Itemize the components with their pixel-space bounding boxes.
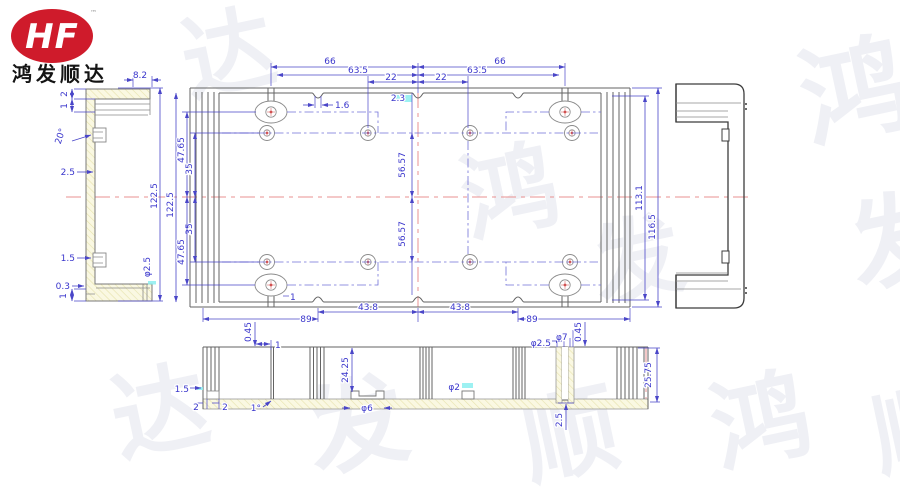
dim-47-65-bottom: 47.65: [177, 239, 187, 265]
phi2-boss: [462, 391, 474, 399]
highlight-mark: [148, 281, 156, 285]
channel-profile: [676, 84, 744, 308]
dim-66-right: 66: [494, 57, 506, 67]
dim-1: 1: [60, 103, 70, 109]
center-dimensions: 56.57 56.57: [398, 93, 412, 295]
dim-8-2: 8.2: [133, 71, 147, 81]
right-side-view: [676, 84, 747, 308]
watermark-char: 鸿: [451, 128, 568, 258]
watermark-char: 鸿: [789, 21, 900, 166]
dim-2-3: 2.3: [391, 94, 405, 104]
dim-20deg: 20°: [54, 127, 68, 145]
dim-122-5-a: 122.5: [150, 183, 160, 209]
dim-43-8-right: 43.8: [450, 303, 470, 313]
dim-1-6: 1.6: [335, 101, 350, 111]
dim-0-45-left: 0.45: [244, 322, 254, 342]
highlight-mark: [197, 387, 203, 390]
boss-wall-left: [556, 347, 562, 403]
dim-113-1: 113.1: [635, 185, 645, 211]
dim-25-75: 25.75: [644, 362, 654, 388]
dim-slot-1: 1: [290, 293, 296, 303]
watermark-char: 鸿: [701, 357, 821, 489]
company-name: 鸿发顺达: [12, 62, 108, 86]
clip-feature-top: [722, 129, 729, 141]
dim-2-a: 2: [193, 403, 199, 413]
watermark-char: 顺: [863, 370, 900, 491]
divider-wall: [271, 347, 274, 399]
cad-drawing-page: 达 鸿 鸿 发 发 达 发 顺 鸿 顺 HF ™ 鸿发顺达 8.2: [0, 0, 900, 500]
left-side-view-dimensions: 8.2 2 1 20° 2.5 1.5 0.3 1 φ2.5: [54, 71, 161, 301]
clip-feature-bottom: [722, 251, 729, 263]
wall-group-2: [420, 347, 432, 399]
dim-63-5-left: 63.5: [348, 66, 368, 76]
dim-56-57-top: 56.57: [398, 152, 408, 178]
dim-1-deg: 1°: [251, 404, 261, 414]
dim-122-5-b: 122.5: [166, 192, 176, 218]
dim-1-5-end: 1.5: [175, 385, 189, 395]
company-logo: HF ™ 鸿发顺达: [11, 9, 108, 86]
dim-116-5: 116.5: [648, 214, 658, 240]
boss-bore: [562, 347, 568, 400]
logo-trademark: ™: [90, 9, 97, 17]
technical-drawing: 达 鸿 鸿 发 发 达 发 顺 鸿 顺 HF ™ 鸿发顺达 8.2: [0, 0, 900, 500]
dim-22-right: 22: [435, 73, 446, 83]
dim-66-left: 66: [324, 57, 336, 67]
dim-2-b: 2: [222, 403, 228, 413]
logo-initials: HF: [25, 17, 79, 57]
top-dimensions: 66 66 63.5 63.5 22 22 1.6 2.3: [271, 57, 565, 128]
dim-89-right: 89: [526, 315, 538, 325]
dim-63-5-right: 63.5: [467, 66, 487, 76]
dim-2-5-bottom: 2.5: [555, 413, 565, 427]
bottom-edge: [219, 297, 601, 302]
dim-phi-2-5: φ2.5: [531, 339, 551, 349]
dim-phi-7: φ7: [556, 333, 568, 343]
dim-47-65-top: 47.65: [177, 137, 187, 163]
dim-1-bottom: 1: [59, 293, 69, 299]
dim-phi-2: φ2: [448, 383, 460, 393]
left-dimensions: 122.5 122.5 47.65 35 35 47.65: [118, 88, 259, 302]
dim-56-57-bottom: 56.57: [398, 221, 408, 247]
dim-0-45-right: 0.45: [574, 322, 584, 342]
boss-wall-right: [568, 347, 574, 403]
dim-1-5: 1.5: [61, 254, 75, 264]
dim-phi-2-5-side: φ2.5: [143, 257, 153, 277]
dim-22-left: 22: [385, 73, 396, 83]
watermark-char: 发: [839, 173, 900, 308]
highlight-mark: [462, 383, 473, 388]
dim-43-8-left: 43.8: [358, 303, 378, 313]
clip-feature-top: [93, 128, 106, 142]
dim-35-bottom: 35: [185, 223, 195, 234]
base-plate: [203, 399, 648, 409]
dim-0-3: 0.3: [56, 282, 70, 292]
dim-35-top: 35: [185, 163, 195, 174]
dim-2-5: 2.5: [61, 168, 75, 178]
dim-1-top: 1: [275, 341, 281, 351]
watermark-char: 达: [101, 348, 218, 478]
dim-89-left: 89: [300, 315, 312, 325]
dim-2: 2: [60, 91, 70, 97]
dim-phi-6: φ6: [361, 404, 373, 414]
dim-24-25: 24.25: [341, 357, 351, 383]
clip-feature-bottom: [93, 253, 106, 267]
